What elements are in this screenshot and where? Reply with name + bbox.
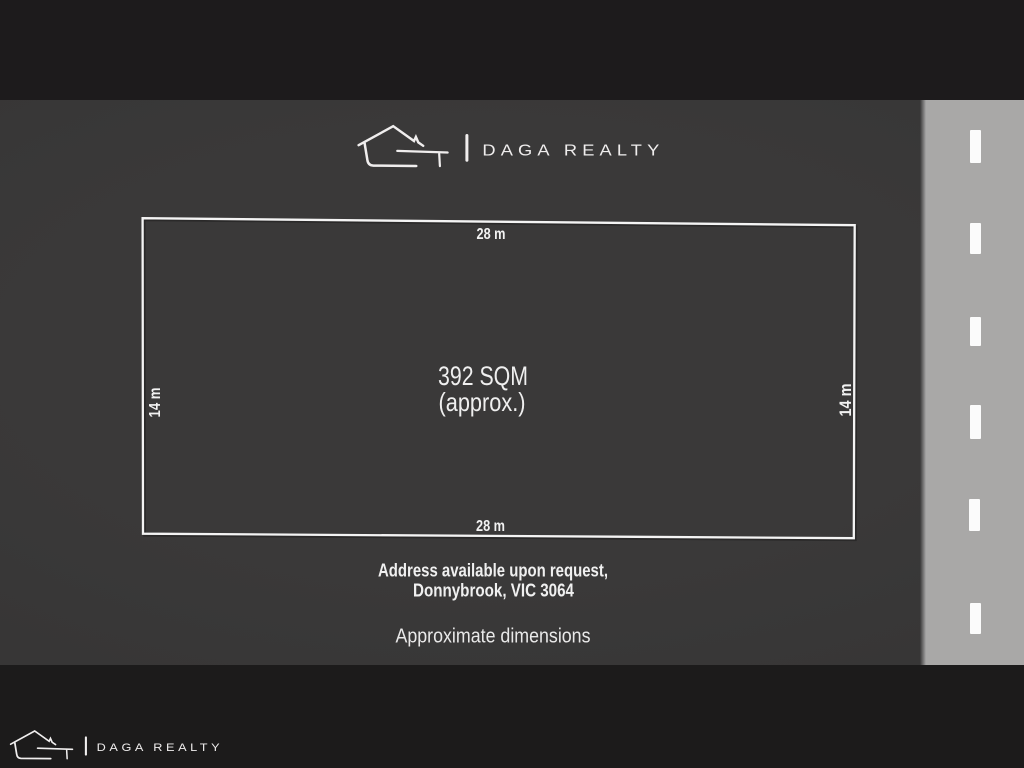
svg-text:DAGA REALTY: DAGA REALTY [482, 142, 664, 159]
svg-text:14 m: 14 m [147, 388, 164, 418]
svg-text:Approximate dimensions: Approximate dimensions [396, 625, 591, 647]
svg-text:28 m: 28 m [477, 226, 506, 243]
svg-text:(approx.): (approx.) [439, 387, 526, 417]
svg-text:Donnybrook, VIC 3064: Donnybrook, VIC 3064 [413, 580, 574, 600]
svg-text:Address available upon request: Address available upon request, [378, 560, 608, 580]
svg-text:28 m: 28 m [476, 518, 505, 535]
svg-text:14 m: 14 m [837, 384, 855, 417]
